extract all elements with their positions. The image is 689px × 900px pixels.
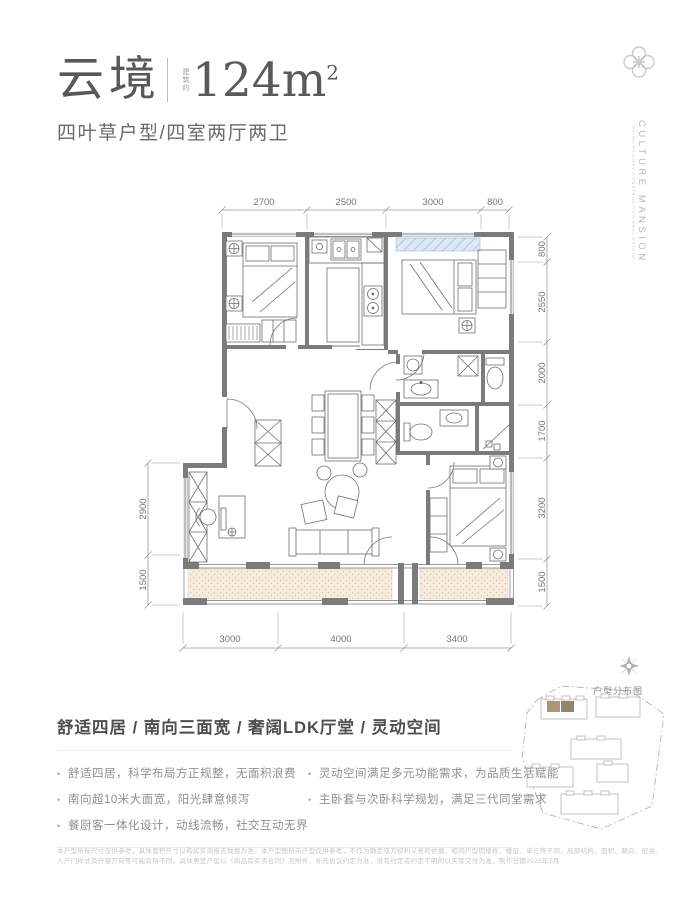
flue-duct (367, 238, 382, 252)
divider-top (57, 750, 512, 751)
balcony-south-left (188, 569, 392, 599)
bathroom2-fixtures (404, 410, 509, 450)
building (597, 761, 628, 782)
feature-item: 灵动空间满足多元功能需求，为品质生活赋能 (308, 761, 559, 787)
compass-icon (619, 656, 639, 676)
dim-label: 2550 (537, 291, 548, 312)
dim-label: 3000 (422, 197, 443, 208)
floorplan-page: 云境 建筑约 124m2 四叶草户型/四室两厅两卫 CULTURE MANSIO… (0, 0, 689, 900)
highlight-unit-1 (547, 701, 560, 712)
dim-label: 3000 (219, 634, 240, 645)
highlight-unit-2 (561, 701, 574, 712)
feature-columns: 舒适四居，科学布局方正规整，无面积浪费 南向超10米大面宽，阳光肆意倾泻 餐厨客… (57, 761, 512, 839)
dim-label: 3200 (537, 497, 548, 518)
dim-label: 800 (537, 241, 548, 257)
building (561, 791, 618, 814)
building-highlighted (541, 696, 587, 719)
dim-label: 3400 (446, 634, 467, 645)
dim-label: 2500 (335, 197, 356, 208)
feature-item: 舒适四居，科学布局方正规整，无面积浪费 (57, 761, 308, 787)
features-section: 舒适四居 / 南向三面宽 / 奢阔LDK厅堂 / 灵动空间 舒适四居，科学布局方… (57, 714, 512, 848)
feature-column-left: 舒适四居，科学布局方正规整，无面积浪费 南向超10米大面宽，阳光肆意倾泻 餐厨客… (57, 761, 308, 839)
feature-item: 南向超10米大面宽，阳光肆意倾泻 (57, 787, 308, 813)
bedroom2-furniture (402, 250, 506, 333)
dim-label: 1500 (138, 569, 149, 590)
bathroom1-fixtures (404, 356, 504, 398)
furniture (189, 237, 509, 562)
features-heading: 舒适四居 / 南向三面宽 / 奢阔LDK厅堂 / 灵动空间 (57, 714, 512, 738)
bay-window-hatch (396, 238, 480, 251)
building (596, 694, 640, 717)
dim-label: 2900 (138, 498, 149, 519)
kitchen-fixtures (309, 237, 384, 345)
dim-label: 1700 (537, 420, 548, 441)
dim-label: 2000 (537, 362, 548, 383)
feature-item: 餐厨客一体化设计，动线流畅，社交互动无界 (57, 813, 308, 839)
dining-set (312, 391, 374, 509)
dim-label: 4000 (330, 634, 351, 645)
dim-label: 2700 (253, 197, 274, 208)
dim-label: 1500 (537, 571, 548, 592)
disclaimer-text: 本户型所标尺寸仅供参考，具体面积尺寸以购房实测报告数据为准。本户型图所示户型仅供… (57, 847, 665, 866)
feature-column-right: 灵动空间满足多元功能需求，为品质生活赋能 主卧套与次卧科学规划，满足三代同堂需求 (308, 761, 559, 839)
bedroom1-furniture (226, 241, 297, 342)
dim-label: 800 (487, 197, 503, 208)
feature-item: 主卧套与次卧科学规划，满足三代同堂需求 (308, 787, 559, 813)
balcony-south-right (420, 569, 508, 599)
bedroom3-furniture (430, 456, 506, 561)
building (571, 736, 621, 759)
